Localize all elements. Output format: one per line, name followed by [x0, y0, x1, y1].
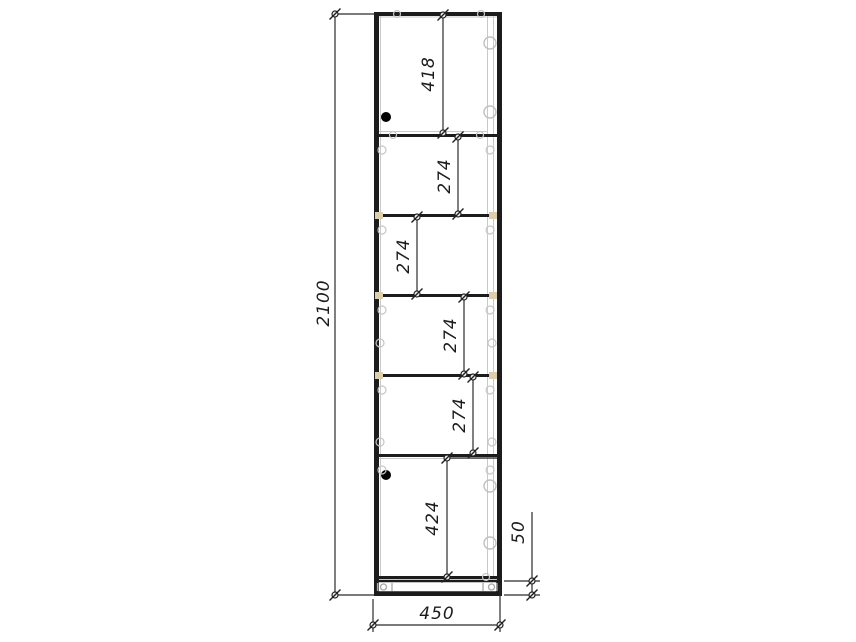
shelf-pin-icon: [488, 339, 496, 347]
shelf-pin-icon: [378, 146, 386, 154]
dim-label-width: 450: [419, 604, 454, 624]
dimension-plinth: 50: [504, 512, 540, 601]
shelf-pin-icon: [488, 438, 496, 446]
hinge-icon: [484, 37, 496, 49]
shelf-pin-icon: [378, 226, 386, 234]
shelf-support: [489, 372, 497, 379]
hinge-icon: [484, 480, 496, 492]
dimension-shelf-spacing-3: 274: [441, 292, 470, 380]
dim-label-shelf-spacing-1: 274: [435, 158, 455, 193]
shelf-support: [489, 212, 497, 219]
top-door-knob-icon: [381, 112, 391, 122]
shelf-support: [375, 292, 383, 299]
shelf-support: [375, 212, 383, 219]
shelf-support: [375, 372, 383, 379]
dim-label-shelf-spacing-3: 274: [441, 317, 461, 352]
shelf-support: [489, 292, 497, 299]
dim-label-bottom-door: 424: [423, 500, 443, 535]
dimension-shelf-spacing-4: 274: [450, 372, 479, 459]
dim-label-shelf-spacing-4: 274: [450, 397, 470, 432]
hinge-icon: [484, 106, 496, 118]
shelf-pin-icon: [378, 386, 386, 394]
dimension-shelf-spacing-2: 274: [394, 212, 423, 300]
right-side-panel: [497, 12, 502, 596]
dim-label-top-door: 418: [419, 56, 439, 91]
dimension-shelf-spacing-1: 274: [435, 132, 464, 220]
shelf-pin-icon: [378, 306, 386, 314]
hinge-icon: [484, 537, 496, 549]
cabinet-elevation-drawing: 2100 418 274 274 274 274: [0, 0, 856, 642]
technical-drawing-canvas: 2100 418 274 274 274 274: [0, 0, 856, 642]
left-side-panel: [374, 12, 379, 596]
dimension-overall-height: 2100: [314, 9, 374, 601]
plinth: [378, 581, 498, 593]
dim-label-shelf-spacing-2: 274: [394, 238, 414, 273]
dim-label-overall-height: 2100: [314, 279, 334, 326]
dim-label-plinth: 50: [509, 520, 529, 544]
dimension-top-door: 418: [419, 10, 449, 139]
